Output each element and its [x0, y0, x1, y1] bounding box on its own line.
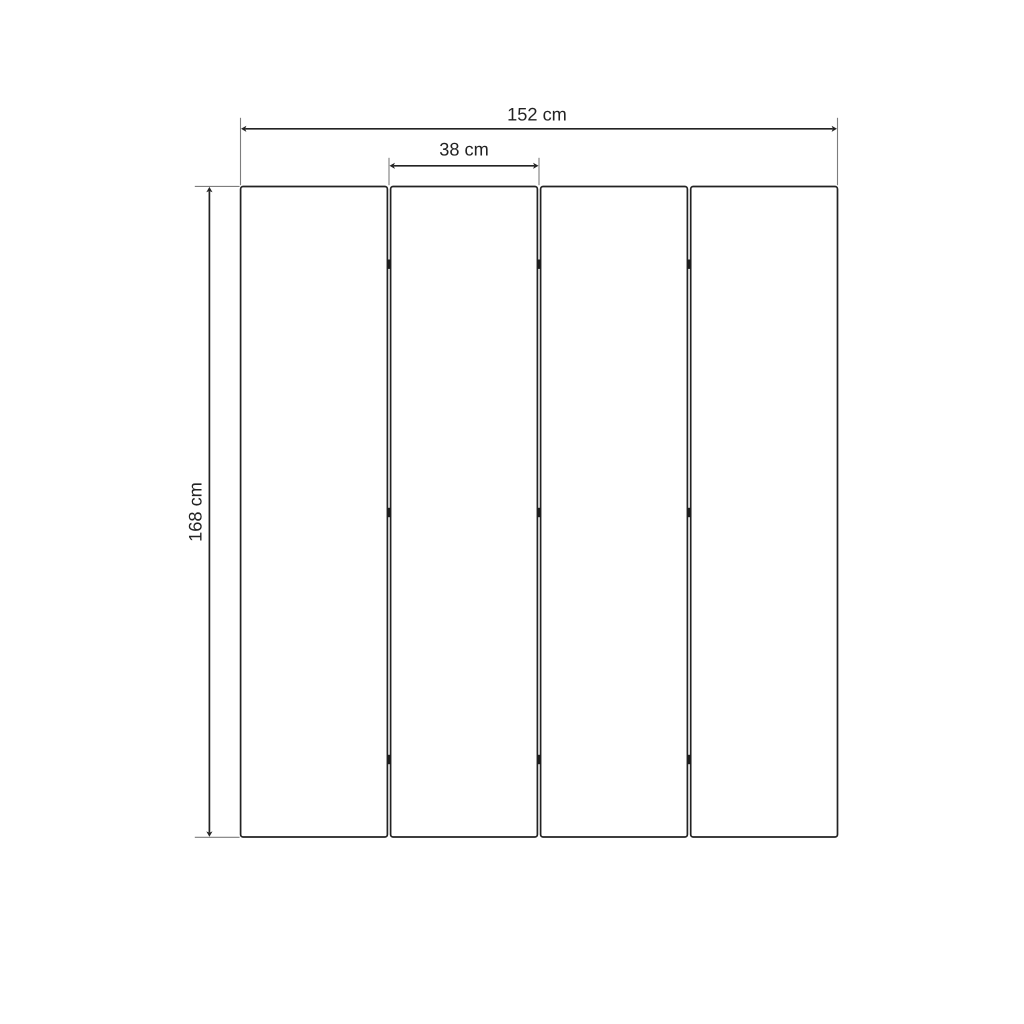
svg-text:152 cm: 152 cm [507, 105, 567, 125]
svg-text:38 cm: 38 cm [439, 139, 489, 159]
svg-text:168 cm: 168 cm [186, 482, 206, 542]
